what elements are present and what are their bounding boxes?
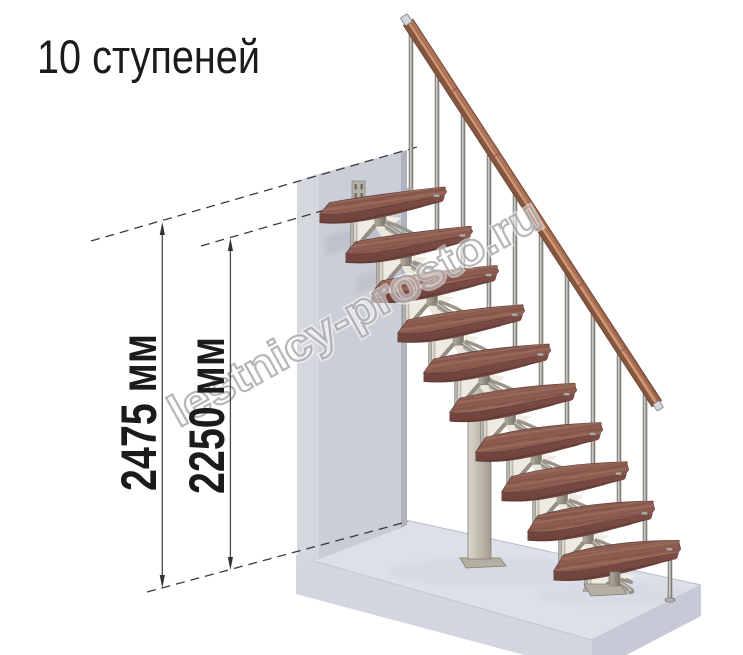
svg-text:2250 мм: 2250 мм bbox=[179, 337, 235, 494]
svg-text:2475 мм: 2475 мм bbox=[111, 334, 167, 491]
svg-text:10 ступеней: 10 ступеней bbox=[37, 30, 260, 83]
